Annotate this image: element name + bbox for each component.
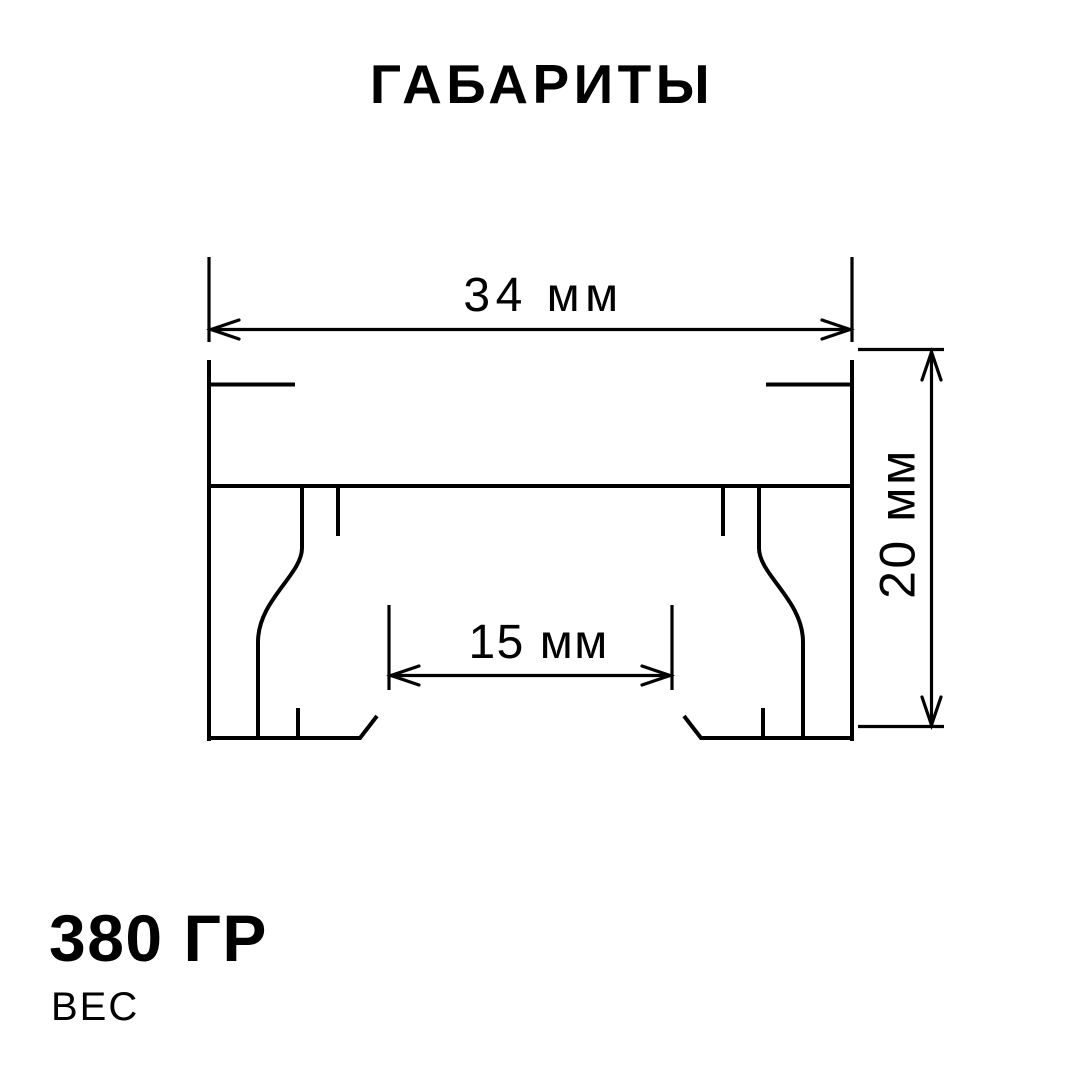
svg-text:15 мм: 15 мм [468,616,608,669]
svg-text:ВЕС: ВЕС [51,985,139,1029]
svg-text:34 мм: 34 мм [463,269,623,322]
svg-text:20 мм: 20 мм [870,448,926,599]
svg-text:380 ГР: 380 ГР [49,901,268,975]
svg-text:ГАБАРИТЫ: ГАБАРИТЫ [370,53,714,115]
